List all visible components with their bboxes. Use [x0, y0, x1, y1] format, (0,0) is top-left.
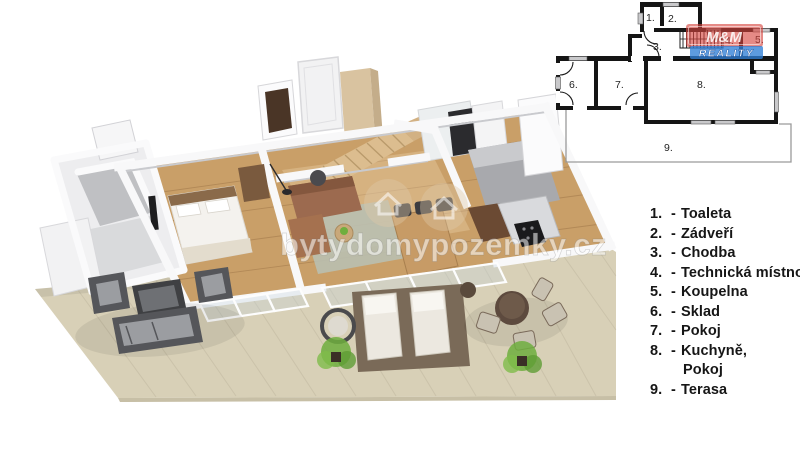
legend-name: Toaleta: [681, 205, 731, 225]
watermark-badge-icon: [364, 179, 412, 227]
floorplan-visualization-page: bytydomypozemky.cz: [0, 0, 800, 450]
storage-wing: [40, 120, 186, 296]
legend-num: 1.: [650, 205, 671, 225]
room-label-2: 2.: [668, 13, 677, 25]
washbasin: [472, 101, 507, 151]
plan-windows: [556, 3, 779, 125]
open-doorway: [265, 88, 292, 133]
side-table-round: [460, 282, 476, 298]
legend-item-9: 9. - Terasa: [650, 381, 800, 401]
room-legend: 1. - Toaleta 2. - Zádveří 3. - Chodba 4.…: [650, 205, 800, 400]
legend-item-6: 6. - Sklad: [650, 303, 800, 323]
room-label-3: 3.: [653, 41, 662, 53]
legend-item-7: 7. - Pokoj: [650, 322, 800, 342]
room-label-9: 9.: [664, 142, 673, 154]
closet-white: [298, 57, 343, 133]
room-label-1: 1.: [646, 12, 655, 24]
brand-logo: M&M REALITY: [686, 24, 763, 60]
watermark-text: bytydomypozemky.cz: [280, 227, 607, 262]
room-label-7: 7.: [615, 79, 624, 91]
brand-logo-line2: REALITY: [699, 48, 754, 60]
plan-2d: 1. 2. 3. 4. 5. 6. 7. 8. 9. M&M REALITY: [543, 0, 800, 168]
legend-item-2: 2. - Zádveří: [650, 225, 800, 245]
room-label-6: 6.: [569, 79, 578, 91]
legend-dash: -: [671, 205, 676, 225]
legend-item-4: 4. - Technická místnost: [650, 264, 800, 284]
brand-logo-line1: M&M: [706, 29, 742, 46]
legend-item-5: 5. - Koupelna: [650, 283, 800, 303]
watermark-badge-icon: [420, 183, 468, 231]
legend-item-1: 1. - Toaleta: [650, 205, 800, 225]
legend-item-3: 3. - Chodba: [650, 244, 800, 264]
legend-item-8-line2: Pokoj: [683, 361, 800, 381]
plan-walls: [556, 2, 778, 124]
legend-item-8: 8. - Kuchyně,: [650, 342, 800, 362]
back-closets: [258, 57, 383, 141]
room-label-8: 8.: [697, 79, 706, 91]
side-table: [310, 170, 326, 186]
plan-terrace-outline: [566, 110, 791, 162]
